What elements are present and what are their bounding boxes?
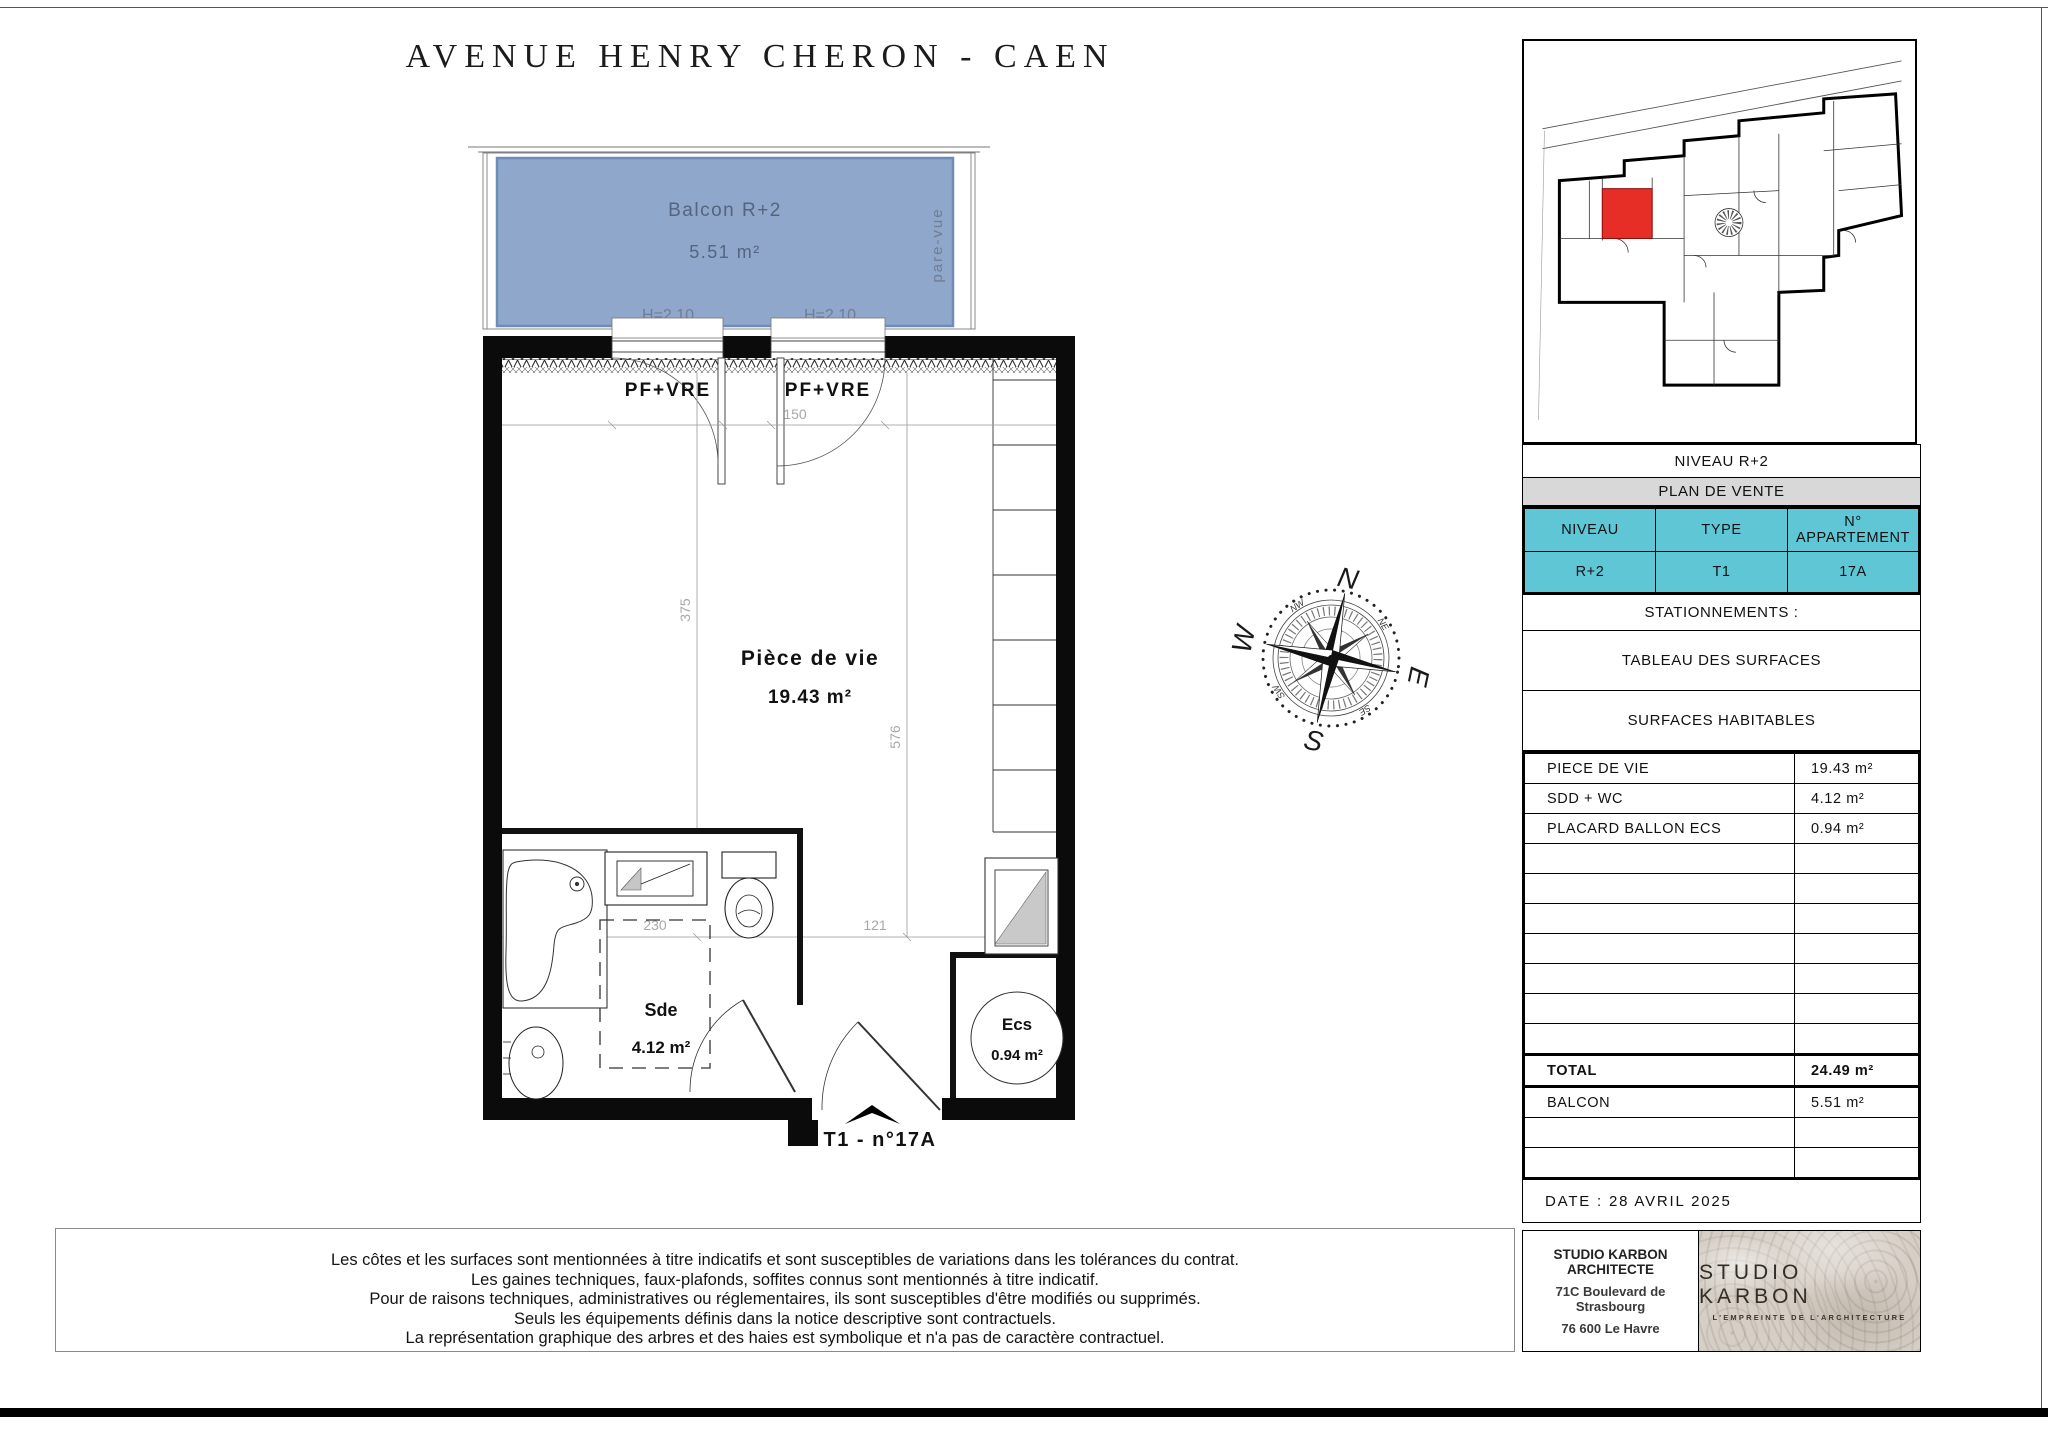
compass-e: E [1401,664,1435,689]
value-type: T1 [1656,552,1788,594]
disclaimer-line: La représentation graphique des arbres e… [406,1329,1165,1349]
compass-s: S [1301,724,1326,758]
total-row: TOTAL 24.49 m² [1524,1055,1920,1087]
architect-street: 71C Boulevard de Strasbourg [1523,1284,1698,1314]
balcony-row: BALCON 5.51 m² [1524,1087,1920,1118]
entry-arrow-icon [845,1105,900,1124]
studio-karbon-logo: STUDIO KARBON L'EMPREINTE DE L'ARCHITECT… [1699,1231,1920,1351]
header-type: TYPE [1656,508,1788,552]
habitable-surfaces-title: SURFACES HABITABLES [1522,691,1921,751]
shower-room-area: 4.12 m² [632,1038,691,1057]
surface-value: 19.43 m² [1795,753,1920,784]
living-room-area: 19.43 m² [768,687,852,708]
unit-table-value-row: R+2 T1 17A [1524,552,1920,594]
unit-table-header-row: NIVEAU TYPE N° APPARTEMENT [1524,508,1920,552]
balcony-area: 5.51 m² [689,242,761,262]
table-row-empty [1524,1024,1920,1055]
table-row-empty [1524,1118,1920,1148]
balcony-row-value: 5.51 m² [1795,1087,1920,1118]
side-panel: NIVEAU R+2 PLAN DE VENTE NIVEAU TYPE N° … [1522,444,1921,1223]
surface-label: SDD + WC [1524,784,1795,814]
ecs-area: 0.94 m² [991,1047,1043,1064]
toilet [722,852,776,938]
washbasin [503,1027,563,1099]
level-caption: NIVEAU R+2 [1522,444,1921,478]
table-row-empty [1524,964,1920,994]
architect-address: STUDIO KARBON ARCHITECTE 71C Boulevard d… [1523,1231,1699,1351]
window-1-label: PF+VRE [625,380,711,401]
key-plan-stair [1715,209,1743,237]
compass-sw: SW [1270,682,1287,701]
plan-sheet: AVENUE HENRY CHERON - CAEN Balcon R+2 5.… [0,0,2048,1431]
shower-room-door [690,1000,795,1092]
floor-plan-drawing: Balcon R+2 5.51 m² H=2.10 H=2.10 pare-vu… [455,128,1125,1198]
sheet-top-rule [0,7,2048,8]
entry-door [822,1022,940,1110]
shower-room-label: Sde [644,1000,677,1020]
header-niveau: NIVEAU [1524,508,1656,552]
key-plan-unit-highlight [1602,189,1652,239]
unit-summary-table: NIVEAU TYPE N° APPARTEMENT R+2 T1 17A [1522,506,1921,595]
parking-row: STATIONNEMENTS : [1522,595,1921,631]
ecs-window [985,858,1058,954]
dim-576: 576 [887,725,903,749]
ecs-circle [971,992,1063,1084]
shower [503,850,607,1008]
architect-name: STUDIO KARBON ARCHITECTE [1523,1247,1698,1277]
sheet-bottom-rule [0,1408,2048,1417]
table-row: SDD + WC 4.12 m² [1524,784,1920,814]
architect-block: STUDIO KARBON ARCHITECTE 71C Boulevard d… [1522,1230,1921,1352]
window-2-label: PF+VRE [785,380,871,401]
value-num-appartement: 17A [1788,552,1920,594]
surface-label: PLACARD BALLON ECS [1524,814,1795,844]
logo-tagline: L'EMPREINTE DE L'ARCHITECTURE [1712,1313,1906,1322]
building-outline [1559,94,1901,385]
surface-value: 0.94 m² [1795,814,1920,844]
key-plan-box [1522,39,1917,444]
balcony-label: Balcon R+2 [668,200,782,221]
compass-n: N [1335,561,1362,596]
table-row: PLACARD BALLON ECS 0.94 m² [1524,814,1920,844]
vanity-sink [605,852,707,905]
dim-121: 121 [863,917,887,933]
date-row: DATE : 28 AVRIL 2025 [1522,1180,1921,1223]
surfaces-table: PIECE DE VIE 19.43 m² SDD + WC 4.12 m² P… [1522,751,1921,1180]
disclaimer-box: Les côtes et les surfaces sont mentionné… [55,1228,1515,1352]
dim-375: 375 [677,598,693,622]
disclaimer-line: Les gaines techniques, faux-plafonds, so… [471,1271,1099,1291]
total-label: TOTAL [1524,1055,1795,1087]
ecs-label: Ecs [1002,1015,1032,1034]
disclaimer-line: Seuls les équipements définis dans la no… [514,1310,1056,1330]
dim-150: 150 [783,406,807,422]
closet-shelves [993,358,1056,832]
compass-ne: NE [1376,616,1392,633]
key-plan-drawing [1524,41,1915,442]
compass-se: SE [1356,703,1372,718]
compass-w: W [1226,621,1262,656]
table-row-empty [1524,874,1920,904]
compass-rose: N E S W NE SE SW NW [1211,538,1451,778]
table-row-empty [1524,994,1920,1024]
balcony-screen-label: pare-vue [929,207,946,282]
value-niveau: R+2 [1524,552,1656,594]
balcony: Balcon R+2 5.51 m² H=2.10 H=2.10 pare-vu… [468,147,990,338]
living-room-label: Pièce de vie [741,647,879,670]
table-row-empty [1524,904,1920,934]
disclaimer-line: Les côtes et les surfaces sont mentionné… [331,1251,1239,1271]
compass-nw: NW [1288,597,1307,614]
balcony-row-label: BALCON [1524,1087,1795,1118]
table-row-empty [1524,844,1920,874]
sale-plan-header: PLAN DE VENTE [1522,478,1921,506]
logo-name: STUDIO KARBON [1699,1261,1920,1309]
total-value: 24.49 m² [1795,1055,1920,1087]
page-title: AVENUE HENRY CHERON - CAEN [0,38,1520,76]
unit-label: T1 - n°17A [823,1129,936,1151]
surfaces-table-title: TABLEAU DES SURFACES [1522,631,1921,691]
header-num-appartement: N° APPARTEMENT [1788,508,1920,552]
surface-label: PIECE DE VIE [1524,753,1795,784]
sheet-right-rule [2041,7,2042,1411]
table-row-empty [1524,1148,1920,1179]
table-row: PIECE DE VIE 19.43 m² [1524,753,1920,784]
table-row-empty [1524,934,1920,964]
architect-city: 76 600 Le Havre [1561,1321,1659,1336]
surface-value: 4.12 m² [1795,784,1920,814]
disclaimer-line: Pour de raisons techniques, administrati… [369,1290,1200,1310]
